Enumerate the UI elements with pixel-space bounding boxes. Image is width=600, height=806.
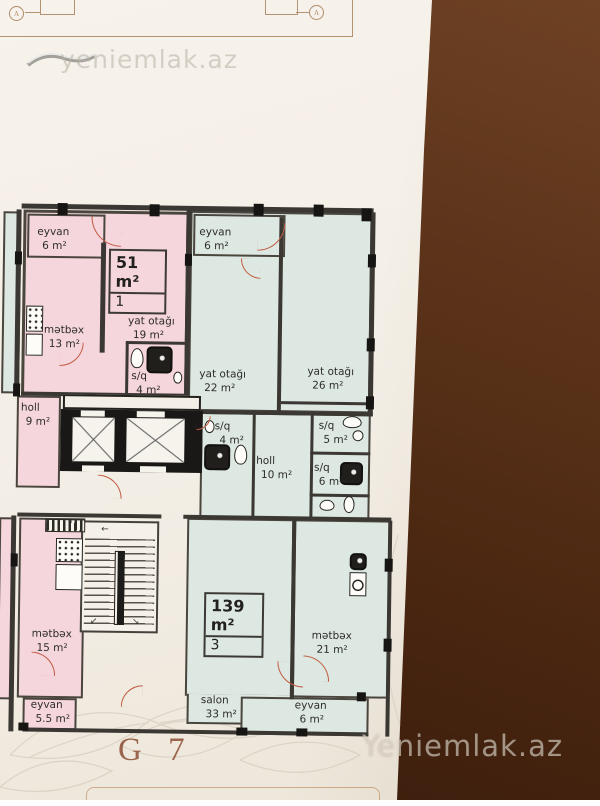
elevator-vent (137, 411, 165, 417)
label-yat-otagi-19: yat otağı19 m² (128, 315, 175, 343)
label-metbex-21: mətbəx21 m² (311, 630, 352, 658)
stair-direction-arrow: ↘ (132, 617, 140, 627)
apartment-139-info-box: 139 m² 3 (203, 592, 264, 658)
column-marker (314, 205, 324, 217)
label-sq-5: s/q5 m² (318, 420, 348, 448)
stair-direction-arrow: ↙ (90, 616, 98, 626)
column-marker (368, 254, 376, 267)
label-metbex-15: mətbəx15 m² (31, 628, 72, 656)
column-marker (385, 559, 393, 572)
column-marker (150, 204, 160, 216)
kitchen-counter-icon (349, 572, 366, 596)
elevator-cab (72, 417, 115, 462)
elevator-door-gap (82, 465, 104, 471)
column-marker (367, 338, 375, 351)
label-metbex-13: mətbəx13 m² (44, 324, 85, 352)
column-marker (366, 396, 374, 409)
column-marker (15, 251, 22, 264)
label-eyvan-apt51: eyvan6 m² (37, 226, 69, 254)
elevator-door-gap (140, 466, 166, 472)
kitchen-counter-icon (45, 519, 85, 533)
label-yat-otagi-26: yat otağı26 m² (307, 365, 354, 393)
label-eyvan-apt139-bottom: eyvan6 m² (294, 699, 326, 727)
elevator-vent (81, 410, 105, 416)
watermark-bottom: Yeniemlak.az (362, 729, 563, 763)
door-arc (98, 475, 122, 499)
label-sq-4-apt51: s/q4 m² (131, 370, 161, 398)
column-marker (236, 728, 247, 736)
watermark-top: yeniemlak.az (60, 45, 238, 74)
stove-icon (26, 306, 43, 332)
column-marker (11, 553, 18, 566)
column-marker (254, 204, 264, 216)
stove-icon (56, 538, 83, 562)
washbasin-icon (352, 430, 363, 441)
apartment-number: 1 (110, 294, 164, 313)
label-eyvan-55: eyvan5.5 m² (30, 699, 70, 727)
elevator-cab (126, 418, 185, 463)
label-holl-10: holl10 m² (256, 455, 293, 483)
label-sq-6: s/q6 m² (314, 462, 344, 490)
column-marker (296, 728, 307, 736)
label-yat-otagi-22: yat otağı22 m² (199, 368, 246, 396)
column-marker (361, 208, 371, 221)
apartment-number: 3 (205, 637, 261, 656)
column-marker (18, 722, 28, 730)
apartment-51-info-box: 51 m² 1 (108, 249, 167, 315)
toilet-icon (130, 348, 143, 368)
staircase: ← ↙ ↘ (80, 520, 160, 633)
door-arc (121, 685, 143, 707)
apartment-area: 139 m² (206, 594, 263, 638)
column-marker (58, 203, 68, 215)
sheet-code: G 7 (118, 732, 194, 769)
shower-icon (204, 444, 230, 470)
elevator-shafts (60, 409, 203, 473)
label-sq-4-apt139: s/q4 m² (214, 420, 244, 448)
stair-direction-arrow: ← (101, 525, 109, 535)
apartment-area: 51 m² (110, 251, 165, 295)
label-eyvan-apt139-top: eyvan6 m² (199, 226, 231, 254)
column-marker (13, 383, 20, 396)
column-marker (357, 692, 366, 701)
sink-icon (26, 334, 43, 356)
sink-icon (55, 564, 82, 590)
toilet-icon (319, 500, 334, 511)
kitchen-sink-icon (350, 553, 367, 570)
label-holl-9: holl9 m² (21, 401, 51, 429)
column-marker (185, 254, 192, 266)
stair-stringer (114, 551, 125, 625)
column-marker (383, 639, 391, 652)
label-salon-33: salon33 m² (200, 694, 237, 722)
